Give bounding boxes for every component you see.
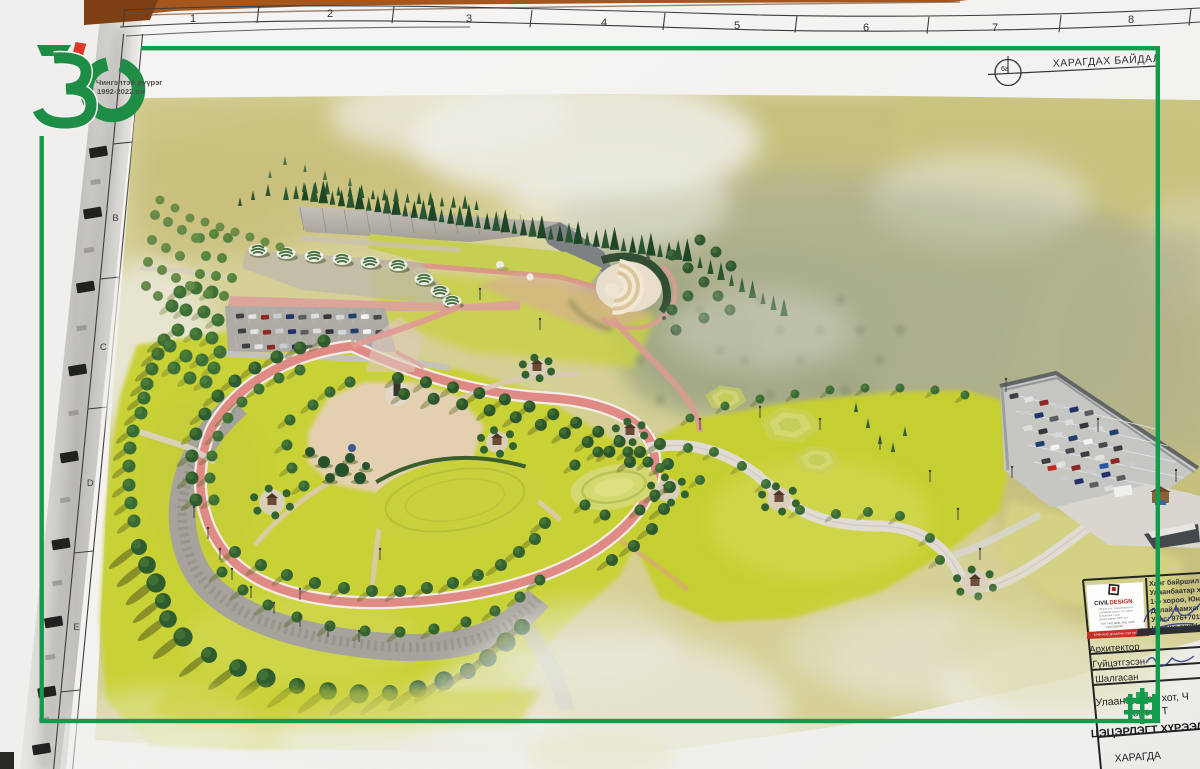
svg-text:2: 2	[327, 8, 333, 20]
svg-text:6а: 6а	[1001, 66, 1009, 73]
svg-text:1: 1	[190, 13, 196, 25]
svg-text:8: 8	[1128, 14, 1134, 26]
svg-text:E: E	[73, 622, 79, 633]
svg-text:1992-2022 он: 1992-2022 он	[97, 87, 145, 96]
svg-text:C: C	[100, 342, 107, 353]
svg-text:4: 4	[601, 17, 607, 29]
svg-text:D: D	[87, 478, 94, 489]
svg-text:7: 7	[992, 22, 998, 34]
svg-text:Чингэлтэй дүүрэг: Чингэлтэй дүүрэг	[96, 78, 162, 87]
svg-text:3: 3	[466, 13, 472, 25]
svg-text:6: 6	[863, 22, 869, 34]
svg-text:B: B	[112, 213, 118, 224]
svg-text:5: 5	[734, 20, 740, 32]
